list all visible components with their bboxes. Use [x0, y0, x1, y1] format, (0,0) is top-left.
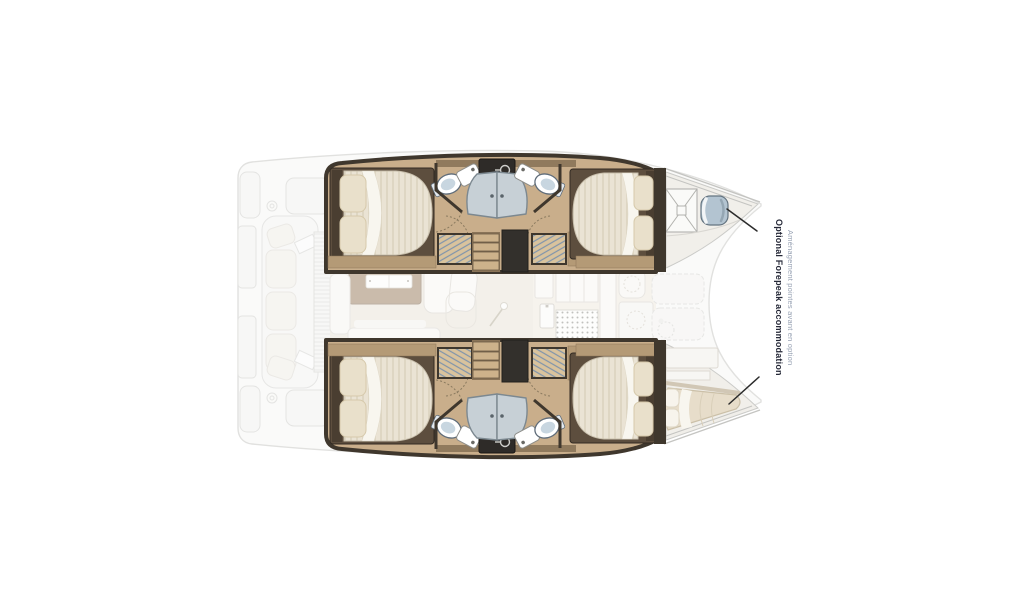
annotation-subtitle: Aménagement pointes avant en option [786, 190, 795, 405]
aft-cabin-bed [330, 168, 434, 258]
forepeak-annotation: Optional Forepeak accommodation Aménagem… [774, 190, 795, 405]
annotation-title: Optional Forepeak accommodation [774, 190, 784, 405]
cabinet [576, 256, 656, 268]
pillow [634, 216, 653, 250]
forepeak-shelf [666, 371, 710, 380]
pillow [340, 216, 366, 253]
table-tray [366, 275, 412, 288]
saloon-bench-aft [354, 320, 426, 328]
foredeck-locker [652, 308, 704, 340]
pillow [340, 175, 366, 212]
wardrobe-hanging [438, 234, 472, 264]
companionway-steps [472, 232, 500, 272]
deck-hatch-icon [666, 189, 697, 232]
forepeak-berth-cushion [701, 196, 728, 225]
pillow [634, 176, 653, 210]
catamaran-floor-plan: Optional Forepeak accommodation Aménagem… [0, 0, 1024, 600]
wardrobe-hanging [532, 234, 566, 264]
foredeck-locker [652, 274, 704, 304]
deck-plan-drawing [0, 0, 1024, 600]
companionway [502, 230, 528, 272]
forepeak-shelf [666, 348, 718, 368]
bulkhead [654, 168, 666, 272]
fwd-cabin-bed [570, 169, 656, 259]
windlass [659, 319, 664, 324]
galley-stove [556, 310, 598, 340]
port-hull [326, 155, 666, 272]
starboard-hull [326, 340, 666, 457]
saloon [330, 267, 656, 342]
door-knob [501, 303, 508, 310]
cabinet [328, 256, 436, 268]
saloon-bench-left [330, 274, 350, 334]
